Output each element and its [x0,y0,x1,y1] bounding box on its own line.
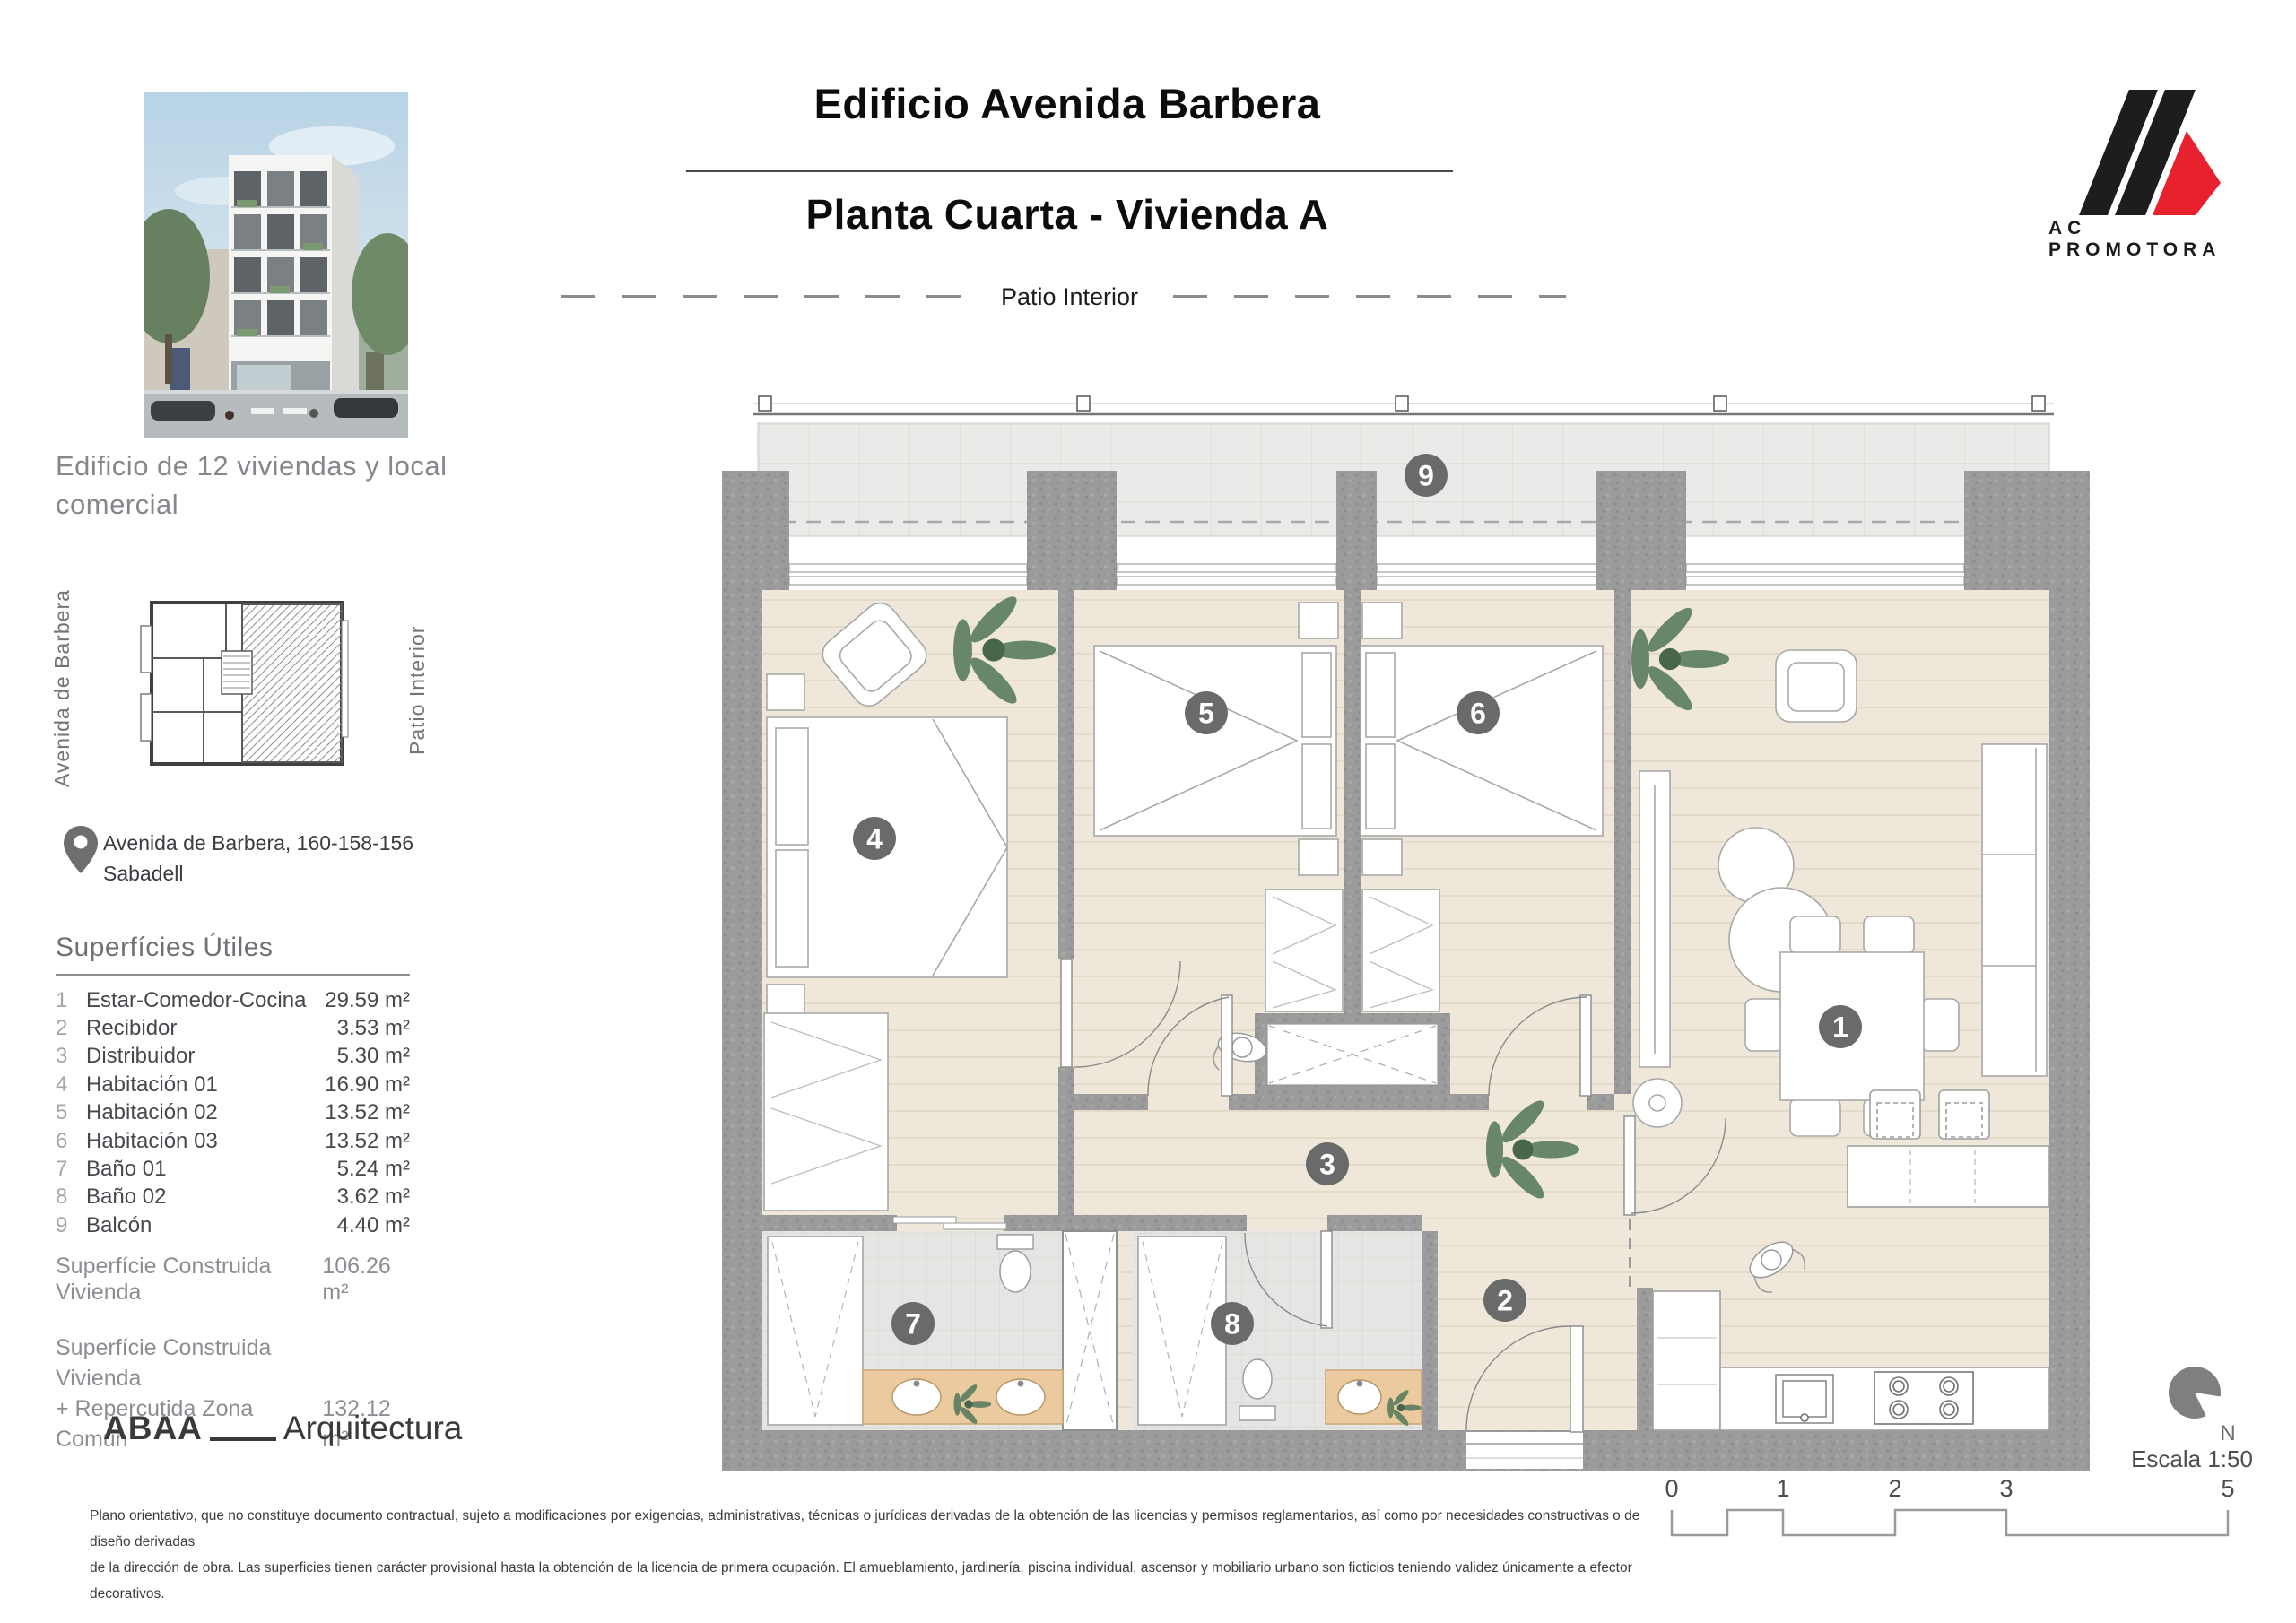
surfaces-table: 1Estar-Comedor-Cocina29.59 m² 2Recibidor… [56,986,410,1240]
table-row: 1Estar-Comedor-Cocina29.59 m² [56,986,410,1014]
badge-room-2: 2 [1497,1285,1513,1317]
address-line1: Avenida de Barbera, 160-158-156 [103,828,413,858]
scalebar-label-1: 1 [1756,1475,1810,1503]
architect-logo: ABAA Arquitectura [103,1410,462,1447]
north-label: N [2220,1421,2235,1445]
scale-text: Escala 1:50 [2111,1445,2273,1473]
scalebar-label-0: 0 [1645,1475,1699,1503]
patio-interior-label: Patio Interior [978,283,1161,311]
scalebar-label-5: 5 [2201,1475,2255,1503]
table-row: 9Balcón4.40 m² [56,1211,410,1239]
page-subtitle: Planta Cuarta - Vivienda A [664,190,1471,239]
balcony-9 [753,396,2054,536]
badge-room-5: 5 [1198,698,1214,730]
project-tagline: Edificio de 12 viviendas y local comerci… [56,447,477,524]
legal-disclaimer: Plano orientativo, que no constituye doc… [90,1503,1655,1607]
table-row: 7Baño 015.24 m² [56,1155,410,1183]
table-row: 2Recibidor3.53 m² [56,1014,410,1042]
architect-logo-line [210,1437,276,1441]
architect-logo-rest: Arquitectura [283,1410,463,1447]
keyplan-diagram [132,594,352,773]
table-row: 6Habitación 0313.52 m² [56,1127,410,1155]
table-row: 3Distribuidor5.30 m² [56,1043,410,1071]
surfaces-title: Superfícies Útiles [56,933,273,963]
table-row: 5Habitación 0213.52 m² [56,1099,410,1127]
building-render-image [143,92,408,438]
project-address: Avenida de Barbera, 160-158-156 Sabadell [103,828,413,889]
address-line2: Sabadell [103,858,413,889]
badge-room-4: 4 [866,823,883,855]
keyplan-right-patio-label: Patio Interior [405,583,430,798]
title-divider [686,170,1453,172]
badge-room-7: 7 [905,1308,921,1341]
floor-plan: 1 2 3 4 5 6 7 8 9 [709,386,2103,1506]
keyplan-left-street-label: Avenida de Barbera [50,581,74,796]
total-built-label: Superfície Construida Vivienda [56,1254,322,1306]
scalebar-label-2: 2 [1868,1475,1922,1503]
disclaimer-line2: de la dirección de obra. Las superficies… [90,1555,1655,1607]
page-title: Edificio Avenida Barbera [664,79,1471,128]
total-built-value: 106.26 m² [322,1254,410,1306]
scalebar-label-3: 3 [1979,1475,2033,1503]
scale-bar [1659,1471,2251,1551]
badge-room-1: 1 [1832,1011,1848,1044]
badge-room-3: 3 [1319,1149,1335,1181]
bedroom-shaft [1267,1024,1438,1085]
location-pin-icon [63,825,99,875]
disclaimer-line1: Plano orientativo, que no constituye doc… [90,1503,1655,1555]
badge-room-8: 8 [1224,1308,1240,1341]
duct-shaft [1063,1231,1117,1430]
badge-room-9: 9 [1418,460,1434,492]
patio-dash-left [561,295,966,298]
patio-dash-right [1173,295,1566,298]
architect-logo-bold: ABAA [103,1410,203,1447]
table-row: 8Baño 023.62 m² [56,1184,410,1211]
ac-promotora-logo-text: AC PROMOTORA [2048,218,2264,261]
ac-promotora-logo-mark [2063,82,2242,217]
north-arrow-icon: N [2151,1350,2249,1449]
surfaces-title-rule [56,974,410,976]
table-row: 4Habitación 0116.90 m² [56,1071,410,1098]
badge-room-6: 6 [1470,698,1486,730]
